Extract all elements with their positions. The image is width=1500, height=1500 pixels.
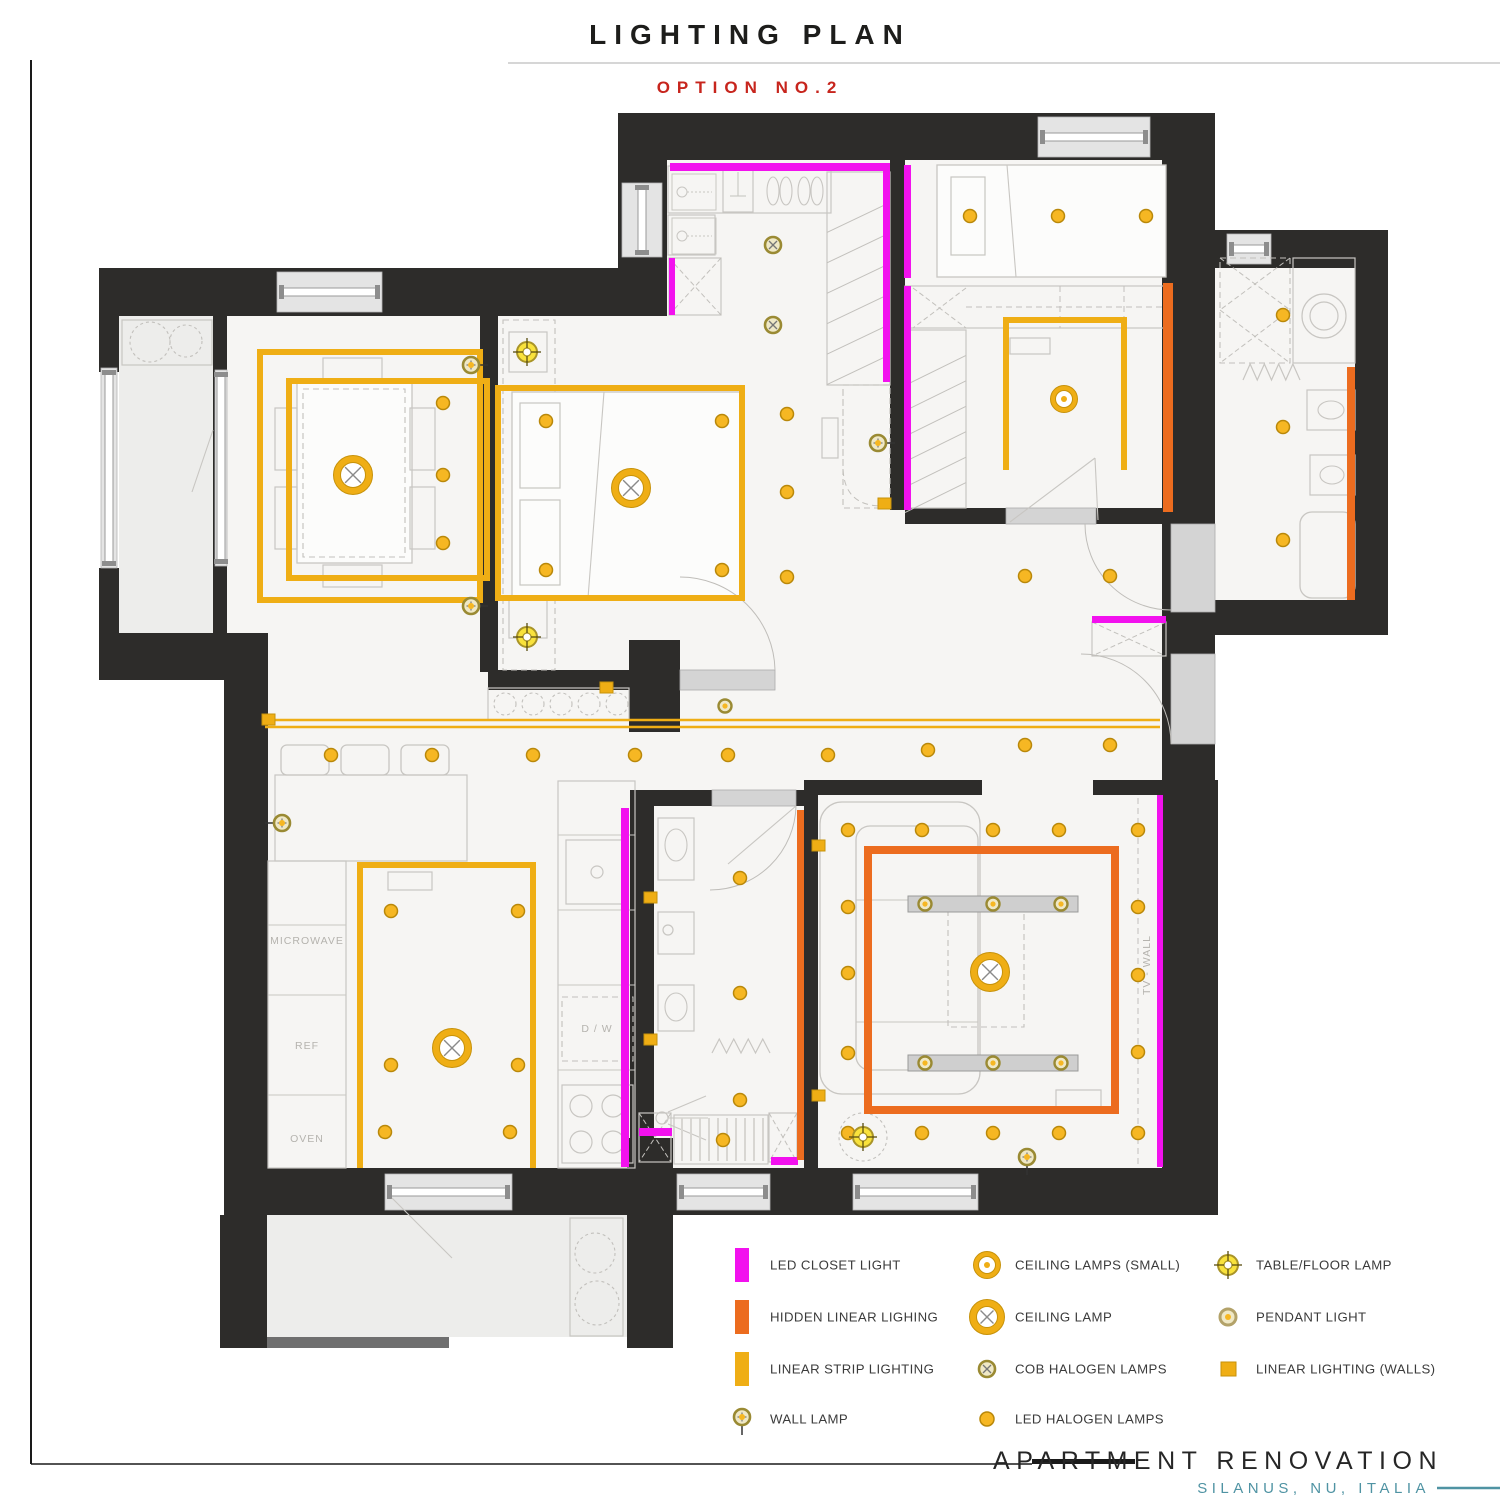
window [1227, 234, 1271, 264]
led-closet-light-strip [904, 286, 911, 510]
legend-item: LINEAR LIGHTING (WALLS) [1221, 1362, 1435, 1377]
led-halogen-lamp-icon [916, 1127, 929, 1140]
led-halogen-lamp-icon [734, 1094, 747, 1107]
ceiling-lamp-icon [433, 1029, 472, 1068]
led-halogen-lamp-icon [1053, 824, 1066, 837]
led-halogen-lamp-icon [716, 415, 729, 428]
room-label: D / W [581, 1023, 612, 1035]
legend-label: CEILING LAMP [1015, 1310, 1112, 1325]
cob-halogen-lamp-icon [765, 237, 781, 253]
led-halogen-lamp-icon [781, 408, 794, 421]
legend-item: HIDDEN LINEAR LIGHING [735, 1300, 938, 1334]
legend-label: LINEAR STRIP LIGHTING [770, 1362, 934, 1377]
led-closet-light-strip [639, 1128, 672, 1136]
led-halogen-lamp-icon [379, 1126, 392, 1139]
door [712, 790, 796, 806]
window [277, 272, 382, 312]
legend-label: TABLE/FLOOR LAMP [1256, 1258, 1392, 1273]
hidden-linear-lighting-strip [1163, 283, 1173, 512]
led-halogen-lamp-icon [822, 749, 835, 762]
pendant-light-icon [919, 898, 932, 911]
led-halogen-lamp-icon [437, 537, 450, 550]
led-closet-light-strip [669, 258, 675, 315]
room-floor [119, 316, 213, 633]
led-closet-light-strip [1157, 795, 1163, 1167]
pendant-light-icon [1055, 898, 1068, 911]
ceiling-lamp-icon [612, 469, 651, 508]
led-halogen-lamp-icon [842, 967, 855, 980]
hidden-linear-lighting-strip [797, 810, 804, 1160]
legend-item: TABLE/FLOOR LAMP [1214, 1251, 1392, 1279]
wall [99, 568, 119, 636]
pendant-light-icon [1055, 1057, 1068, 1070]
balcony-edge [267, 1337, 449, 1348]
led-halogen-lamp-icon [717, 1134, 730, 1147]
led-halogen-lamp-icon [722, 749, 735, 762]
window [853, 1174, 978, 1210]
wall [1162, 780, 1218, 1168]
led-halogen-lamp-icon [1052, 210, 1065, 223]
room-label: TV - WALL [1141, 935, 1153, 995]
legend-label: LED HALOGEN LAMPS [1015, 1412, 1164, 1427]
ceiling-lamp-icon [970, 1300, 1005, 1335]
led-halogen-lamp-icon [1019, 570, 1032, 583]
table-floor-lamp-icon [1214, 1251, 1242, 1279]
door [1171, 524, 1215, 612]
led-halogen-lamp-icon [325, 749, 338, 762]
led-closet-light-strip [670, 163, 890, 171]
room-label: OVEN [290, 1133, 324, 1145]
legend-label: CEILING LAMPS (SMALL) [1015, 1258, 1180, 1273]
led-halogen-lamp-icon [1132, 1046, 1145, 1059]
lighting-plan-page: LIGHTING PLAN OPTION NO.2 MICROWAVEREFOV… [0, 0, 1500, 1500]
ceiling-lamp-icon [334, 456, 373, 495]
linear-strip-lighting-swatch [735, 1352, 749, 1386]
led-halogen-lamp-icon [980, 1412, 994, 1426]
linear-lighting-walls-icon [600, 682, 613, 693]
wall [99, 316, 119, 372]
linear-lighting-walls-icon [644, 1034, 657, 1045]
legend: LED CLOSET LIGHTHIDDEN LINEAR LIGHINGLIN… [734, 1248, 1435, 1435]
led-halogen-lamp-icon [1277, 421, 1290, 434]
wall [1093, 780, 1162, 795]
page-title: LIGHTING PLAN [589, 19, 911, 50]
led-halogen-lamp-icon [1132, 969, 1145, 982]
wall [796, 790, 804, 806]
ceiling-lamp-icon [971, 953, 1010, 992]
led-closet-light-strip [621, 808, 629, 1167]
pendant-light-icon [987, 898, 1000, 911]
legend-item: LED HALOGEN LAMPS [980, 1412, 1164, 1427]
led-halogen-lamp-icon [781, 486, 794, 499]
led-halogen-lamp-icon [1277, 534, 1290, 547]
floor-plan: MICROWAVEREFOVEND / WTV - WALL [99, 113, 1388, 1348]
wall [1162, 113, 1215, 230]
pendant-light-icon [719, 700, 732, 713]
led-halogen-lamp-icon [1277, 309, 1290, 322]
door [1171, 654, 1215, 744]
led-halogen-lamp-icon [987, 1127, 1000, 1140]
led-halogen-lamp-icon [964, 210, 977, 223]
led-halogen-lamp-icon [385, 905, 398, 918]
led-halogen-lamp-icon [916, 824, 929, 837]
led-halogen-lamp-icon [1019, 739, 1032, 752]
led-halogen-lamp-icon [987, 824, 1000, 837]
window [677, 1174, 770, 1210]
led-halogen-lamp-icon [842, 1047, 855, 1060]
legend-label: COB HALOGEN LAMPS [1015, 1362, 1167, 1377]
led-halogen-lamp-icon [1053, 1127, 1066, 1140]
led-halogen-lamp-icon [734, 872, 747, 885]
led-closet-light-strip [904, 165, 911, 278]
led-halogen-lamp-icon [1132, 824, 1145, 837]
led-closet-light-strip [883, 163, 890, 382]
led-halogen-lamp-icon [1132, 1127, 1145, 1140]
legend-label: LINEAR LIGHTING (WALLS) [1256, 1362, 1435, 1377]
pendant-light-icon [919, 1057, 932, 1070]
page-subtitle: OPTION NO.2 [657, 78, 844, 97]
linear-lighting-walls-icon [878, 498, 891, 509]
door [680, 670, 775, 690]
led-closet-light-strip [1092, 616, 1166, 623]
window [214, 370, 228, 566]
legend-label: WALL LAMP [770, 1412, 848, 1427]
legend-item: CEILING LAMPS (SMALL) [974, 1252, 1181, 1279]
hidden-linear-lighting-swatch [735, 1300, 749, 1334]
cob-halogen-lamp-icon [765, 317, 781, 333]
wall [804, 780, 818, 1168]
ceiling-lamp-small-icon [1051, 386, 1078, 413]
legend-item: LED CLOSET LIGHT [735, 1248, 901, 1282]
pendant-light-center [1225, 1314, 1231, 1320]
wall [618, 113, 905, 160]
door [1006, 508, 1096, 524]
led-halogen-lamp-icon [512, 1059, 525, 1072]
led-closet-light-strip [771, 1157, 798, 1165]
legend-item: COB HALOGEN LAMPS [979, 1361, 1167, 1377]
hidden-linear-lighting-strip [1347, 367, 1355, 600]
ceiling-lamp-small-icon [974, 1252, 1001, 1279]
led-halogen-lamp-icon [734, 987, 747, 1000]
pendant-light-icon [987, 1057, 1000, 1070]
wall [654, 790, 712, 806]
legend-label: PENDANT LIGHT [1256, 1310, 1366, 1325]
led-halogen-lamp-icon [842, 901, 855, 914]
led-halogen-lamp-icon [1104, 570, 1117, 583]
wall [905, 508, 1006, 524]
led-closet-light-swatch [735, 1248, 749, 1282]
legend-label: LED CLOSET LIGHT [770, 1258, 901, 1273]
wall [1355, 230, 1388, 635]
room-label: MICROWAVE [270, 935, 344, 947]
led-halogen-lamp-icon [1104, 739, 1117, 752]
led-halogen-lamp-icon [922, 744, 935, 757]
led-halogen-lamp-icon [1140, 210, 1153, 223]
window [385, 1174, 512, 1210]
wall [99, 268, 667, 316]
cob-halogen-lamp-icon [979, 1361, 995, 1377]
linear-lighting-walls-icon [1221, 1362, 1236, 1376]
wall [629, 640, 680, 732]
wall [220, 1215, 267, 1348]
window [1038, 117, 1150, 157]
window [622, 183, 662, 257]
legend-item: WALL LAMP [734, 1409, 848, 1435]
led-halogen-lamp-icon [504, 1126, 517, 1139]
led-halogen-lamp-icon [629, 749, 642, 762]
wall [627, 1138, 673, 1348]
led-halogen-lamp-icon [1132, 901, 1145, 914]
wall [224, 640, 268, 1168]
floor-plan-canvas: LIGHTING PLAN OPTION NO.2 MICROWAVEREFOV… [0, 0, 1500, 1500]
legend-label: HIDDEN LINEAR LIGHING [770, 1310, 938, 1325]
wall-lamp-icon [734, 1409, 750, 1435]
led-halogen-lamp-icon [512, 905, 525, 918]
room-floor [267, 1215, 627, 1337]
led-halogen-lamp-icon [426, 749, 439, 762]
linear-lighting-walls-icon [644, 892, 657, 903]
legend-item: LINEAR STRIP LIGHTING [735, 1352, 934, 1386]
linear-lighting-walls-icon [812, 840, 825, 851]
led-halogen-lamp-icon [540, 415, 553, 428]
linear-lighting-walls-icon [812, 1090, 825, 1101]
room-label: REF [295, 1040, 319, 1052]
wall [1096, 508, 1165, 524]
led-halogen-lamp-icon [842, 824, 855, 837]
led-halogen-lamp-icon [527, 749, 540, 762]
window [101, 368, 117, 568]
led-halogen-lamp-icon [385, 1059, 398, 1072]
led-halogen-lamp-icon [540, 564, 553, 577]
footer-location: SILANUS, NU, ITALIA [1197, 1480, 1430, 1497]
wall [1215, 600, 1388, 635]
wall [890, 160, 905, 510]
legend-item: CEILING LAMP [970, 1300, 1113, 1335]
led-halogen-lamp-icon [437, 469, 450, 482]
legend-item: PENDANT LIGHT [1220, 1309, 1366, 1325]
wall [818, 780, 982, 795]
led-halogen-lamp-icon [437, 397, 450, 410]
footer-project: APARTMENT RENOVATION [993, 1447, 1443, 1475]
led-halogen-lamp-icon [781, 571, 794, 584]
led-halogen-lamp-icon [716, 564, 729, 577]
linear-lighting-walls-icon [262, 714, 275, 725]
